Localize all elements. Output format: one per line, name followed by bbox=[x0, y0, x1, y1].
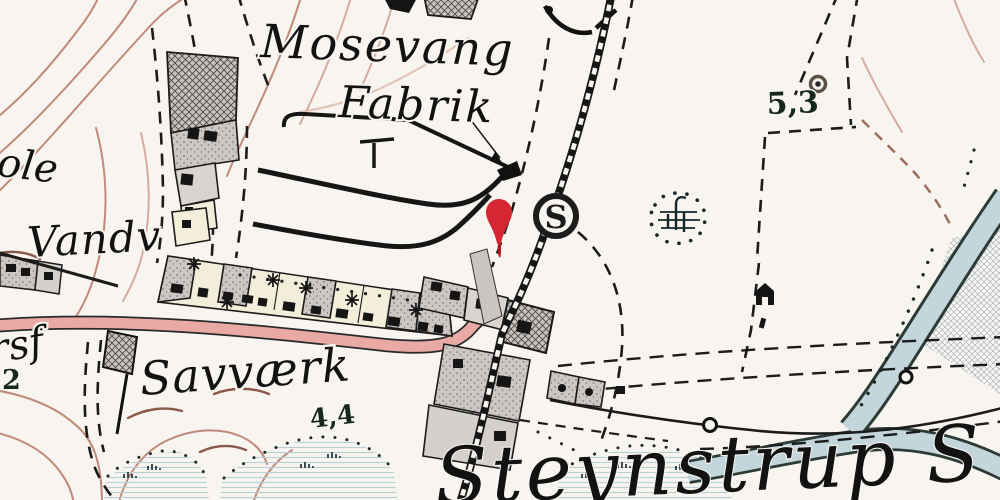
label-fabrik: Fabrik bbox=[337, 77, 495, 133]
hatched-building bbox=[424, 0, 479, 19]
label-vandvaerk-partial: Vandv bbox=[26, 211, 163, 267]
label-spot-height-53: 5,3 bbox=[766, 85, 819, 122]
historical-map: S Mosevang Fabrik ole Vandv rsf 2 Savvær… bbox=[0, 0, 1000, 500]
label-skole-partial: ole bbox=[0, 140, 61, 193]
label-spot-height-44: 4,4 bbox=[308, 400, 357, 435]
culvert-ring bbox=[900, 371, 912, 383]
label-num-partial: 2 bbox=[2, 365, 21, 396]
label-mosevang: Mosevang bbox=[259, 14, 516, 77]
map-canvas[interactable]: S Mosevang Fabrik ole Vandv rsf 2 Savvær… bbox=[0, 0, 1000, 500]
station-letter: S bbox=[544, 198, 567, 236]
station-symbol: S bbox=[536, 196, 576, 236]
